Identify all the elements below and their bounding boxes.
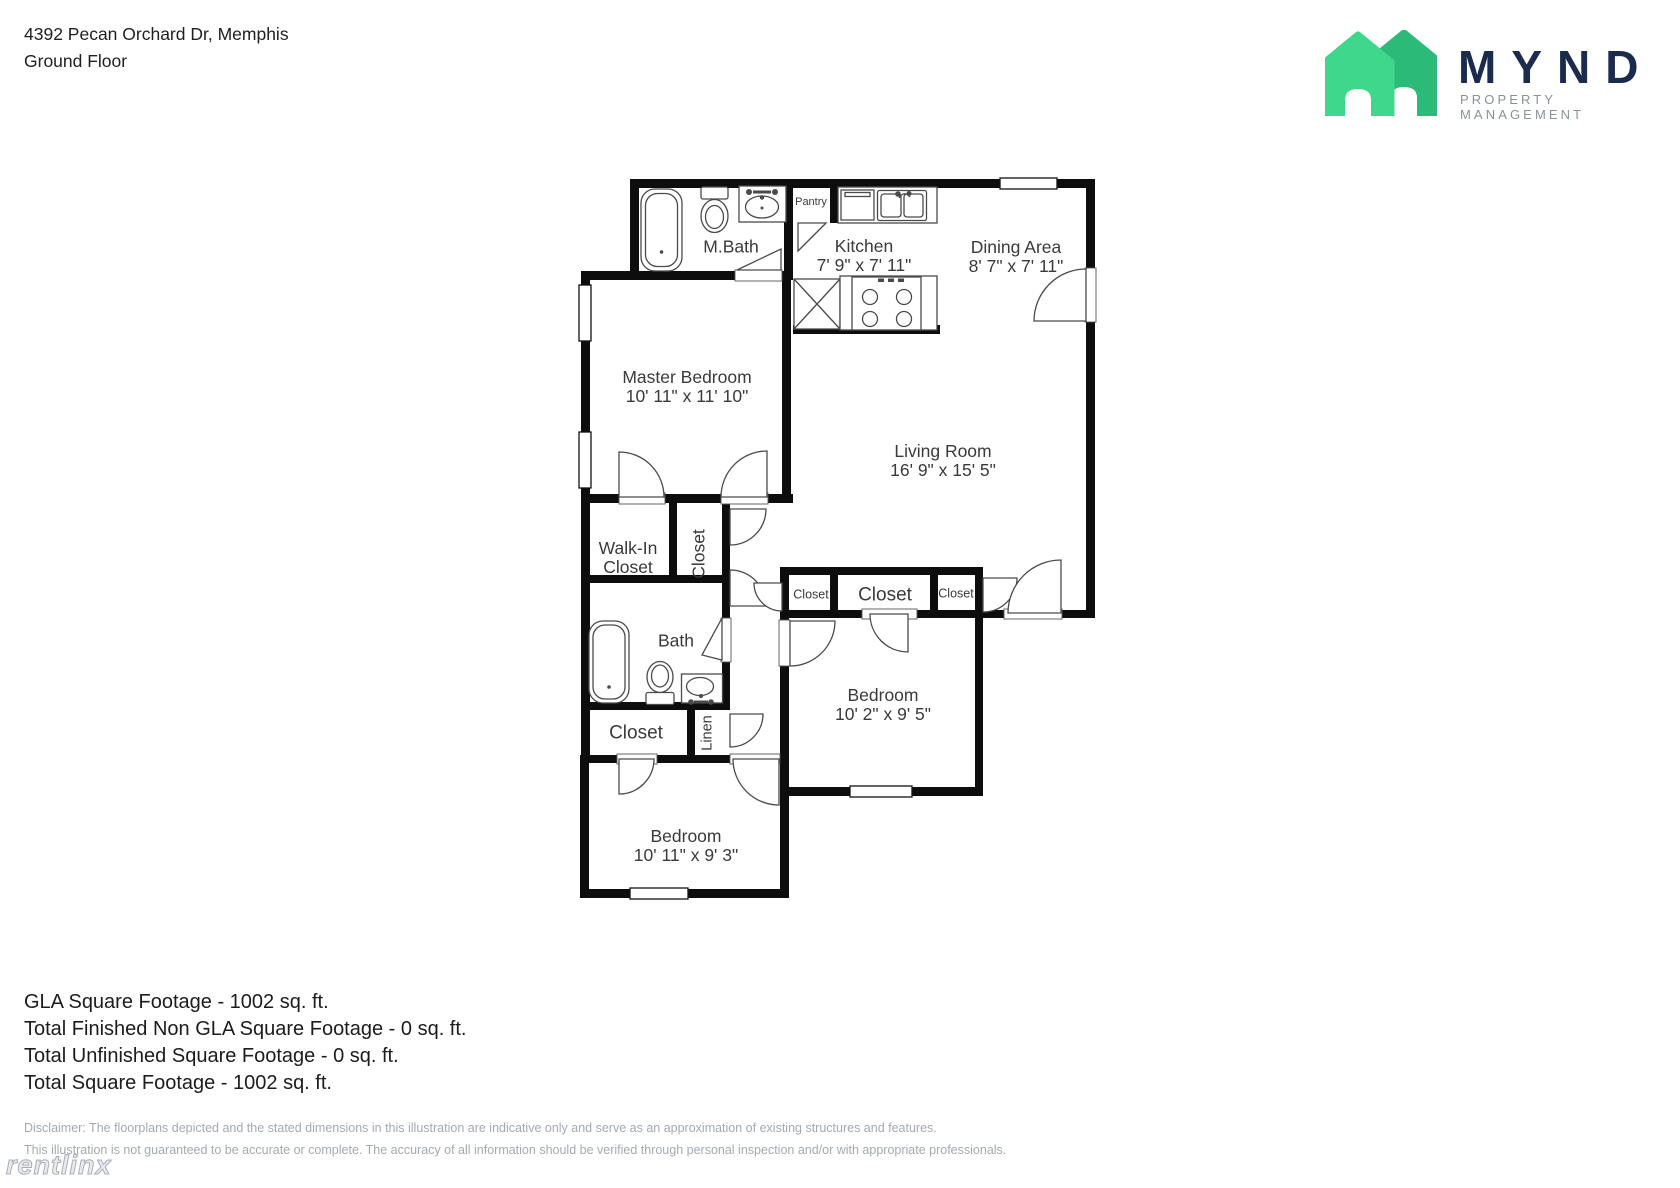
room-label-walk-in-closet: Walk-In Closet (585, 539, 671, 577)
room-label-pantry: Pantry (795, 196, 827, 208)
stove-icon (840, 276, 937, 330)
total-square-footage: Total Square Footage - 1002 sq. ft. (24, 1072, 332, 1095)
toilet-icon (646, 662, 674, 705)
room-label-hall-closet: Closet (690, 529, 709, 579)
room-label-mbath: M.Bath (703, 238, 758, 257)
room-label-master-bedroom: Master Bedroom10' 11" x 11' 10" (622, 368, 751, 406)
room-label-living-room: Living Room16' 9" x 15' 5" (890, 442, 996, 480)
master-bathtub-icon (641, 189, 682, 271)
disclaimer-line-2: This illustration is not guaranteed to b… (24, 1143, 1006, 1157)
finished-non-gla-square-footage: Total Finished Non GLA Square Footage - … (24, 1018, 466, 1041)
unfinished-square-footage: Total Unfinished Square Footage - 0 sq. … (24, 1045, 399, 1068)
room-label-closet-row-right: Closet (938, 588, 973, 601)
master-toilet-icon (701, 187, 728, 233)
kitchen-sink-icon (878, 191, 927, 221)
room-label-dining-area: Dining Area8' 7" x 7' 11" (969, 238, 1064, 276)
refrigerator-icon (794, 279, 840, 329)
disclaimer-line-1: Disclaimer: The floorplans depicted and … (24, 1121, 937, 1135)
room-label-kitchen: Kitchen7' 9" x 7' 11" (817, 237, 912, 275)
room-label-closet-row-center: Closet (858, 586, 912, 605)
gla-square-footage: GLA Square Footage - 1002 sq. ft. (24, 991, 329, 1014)
bathtub-icon (589, 621, 629, 703)
room-label-bath: Bath (658, 632, 694, 651)
room-label-closet-row-left: Closet (793, 589, 828, 602)
room-label-bedroom-right: Bedroom10' 2" x 9' 5" (835, 686, 931, 724)
rentlinx-watermark: rentlinx (6, 1150, 112, 1181)
sink-icon (682, 674, 723, 705)
room-label-bedroom-bottom: Bedroom10' 11" x 9' 3" (634, 827, 738, 865)
master-sink-icon (739, 186, 786, 222)
floorplan-page: 4392 Pecan Orchard Dr, Memphis Ground Fl… (0, 0, 1680, 1188)
room-label-linen: Linen (699, 715, 718, 750)
room-label-closet-bottom: Closet (609, 724, 663, 743)
